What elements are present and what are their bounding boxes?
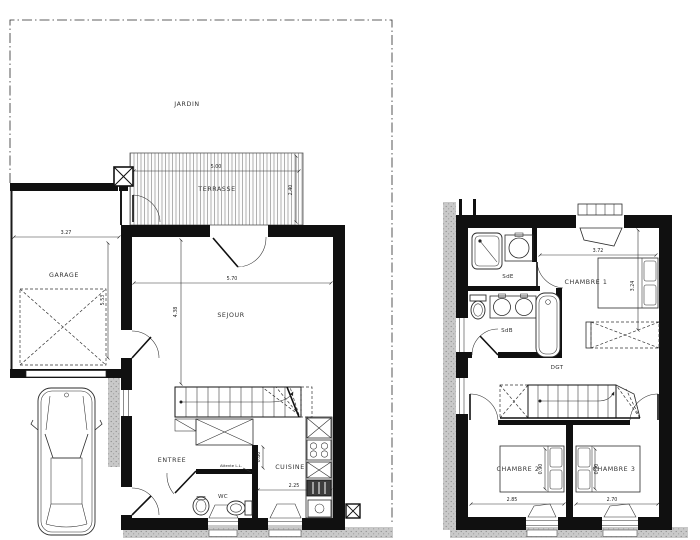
french-door-sejour (213, 237, 266, 267)
terrasse-label: TERRASSE (197, 186, 235, 193)
wc-room: WC Attente L.L. (167, 445, 258, 518)
door-chambre3 (630, 394, 658, 420)
chambre1-depth-dim: 3.24 (630, 281, 636, 292)
closet-cross (586, 322, 659, 348)
west-window (124, 390, 129, 416)
chambre1-width-dim: 3.72 (593, 248, 604, 254)
garage-label: GARAGE (49, 272, 79, 279)
chimney-vents (459, 199, 476, 215)
understair-closet (175, 419, 253, 445)
chambre1-label: CHAMBRE 1 (565, 279, 608, 286)
jardin-label: JARDIN (173, 101, 199, 108)
sink-icon (307, 462, 331, 478)
chambre-partition (566, 420, 573, 517)
toilet-icon (227, 501, 252, 515)
sde-basin-icon (505, 233, 533, 261)
kitchen-counter (306, 417, 332, 518)
terrasse-depth-dim: 2.40 (288, 185, 294, 196)
fridge-icon (307, 418, 331, 438)
sde-room: SdE (468, 228, 563, 291)
ground-floor-plan: JARDIN 5.00 2.40 TERRASSE 3.27 5.53 GARA… (10, 20, 393, 538)
south-window-ch3 (602, 504, 638, 537)
double-basin-icon (490, 294, 536, 318)
cuisine-label: CUISINE (275, 464, 305, 471)
south-window-ch2 (526, 504, 558, 537)
chambre2-bed-dim: 0.90 (538, 464, 544, 475)
washer-note: Attente L.L. (220, 463, 242, 468)
party-wall-strip (443, 202, 456, 530)
car (31, 388, 102, 535)
garage-door (26, 371, 106, 378)
wc-label: WC (218, 494, 228, 500)
south-window-2 (268, 504, 302, 537)
side-path (108, 372, 120, 467)
sde-label: SdE (502, 274, 514, 280)
west-window-1 (460, 318, 465, 352)
garage-area: 3.27 5.53 GARAGE (10, 167, 133, 378)
entree-label: ENTREE (158, 457, 186, 464)
first-floor-plan: SdE SdB 3.72 3.24 CHAM (443, 199, 688, 538)
utility-post-icon (346, 504, 360, 518)
floor-plan-page: JARDIN 5.00 2.40 TERRASSE 3.27 5.53 GARA… (0, 0, 700, 540)
terrasse-area: 5.00 2.40 TERRASSE (130, 153, 303, 225)
garage-depth-dim: 5.53 (100, 295, 106, 306)
sdb-label: SdB (501, 328, 513, 334)
sejour-width-dim: 5.70 (227, 276, 238, 282)
dgt-partition (498, 420, 630, 425)
dgt-area: DGT (470, 365, 658, 420)
staircase-first (500, 385, 640, 418)
cuisine-pass-dim: 0.80 (256, 452, 262, 463)
oven-icon (307, 480, 331, 496)
chambre2-width-dim: 2.85 (507, 497, 518, 503)
chambre2-room: CHAMBRE 2 0.90 2.85 (471, 446, 564, 504)
entree-area: ENTREE (158, 457, 186, 464)
west-window-2 (460, 378, 465, 414)
shower-icon (472, 233, 502, 269)
terrasse-width-dim: 5.00 (211, 164, 222, 170)
garage-access-door (132, 331, 159, 358)
toilet2-icon (470, 295, 486, 319)
sejour-label: SEJOUR (217, 312, 244, 319)
bathtub-icon (536, 293, 560, 357)
chambre3-room: CHAMBRE 3 0.90 2.70 (576, 446, 658, 504)
cuisine-area: CUISINE 2.25 0.80 (256, 417, 332, 518)
cuisine-width-dim: 2.25 (289, 483, 300, 489)
floor-plan-drawing: JARDIN 5.00 2.40 TERRASSE 3.27 5.53 GARA… (0, 0, 700, 540)
hob-icon (307, 440, 331, 460)
sdb-room: SdB (468, 288, 562, 358)
chambre2-label: CHAMBRE 2 (497, 466, 540, 473)
front-door (132, 488, 159, 515)
dgt-label: DGT (551, 365, 564, 371)
chambre3-width-dim: 2.70 (607, 497, 618, 503)
roof-window (578, 204, 622, 246)
door-chambre2 (470, 394, 498, 420)
dishwasher-icon (308, 500, 331, 517)
sejour-depth-dim: 4.38 (173, 307, 179, 318)
garage-width-dim: 3.27 (61, 230, 72, 236)
chambre3-bed-dim: 0.90 (594, 464, 600, 475)
washbasin-icon (193, 497, 209, 516)
garage-storage-cross (20, 289, 106, 365)
staircase-ground (175, 387, 312, 445)
